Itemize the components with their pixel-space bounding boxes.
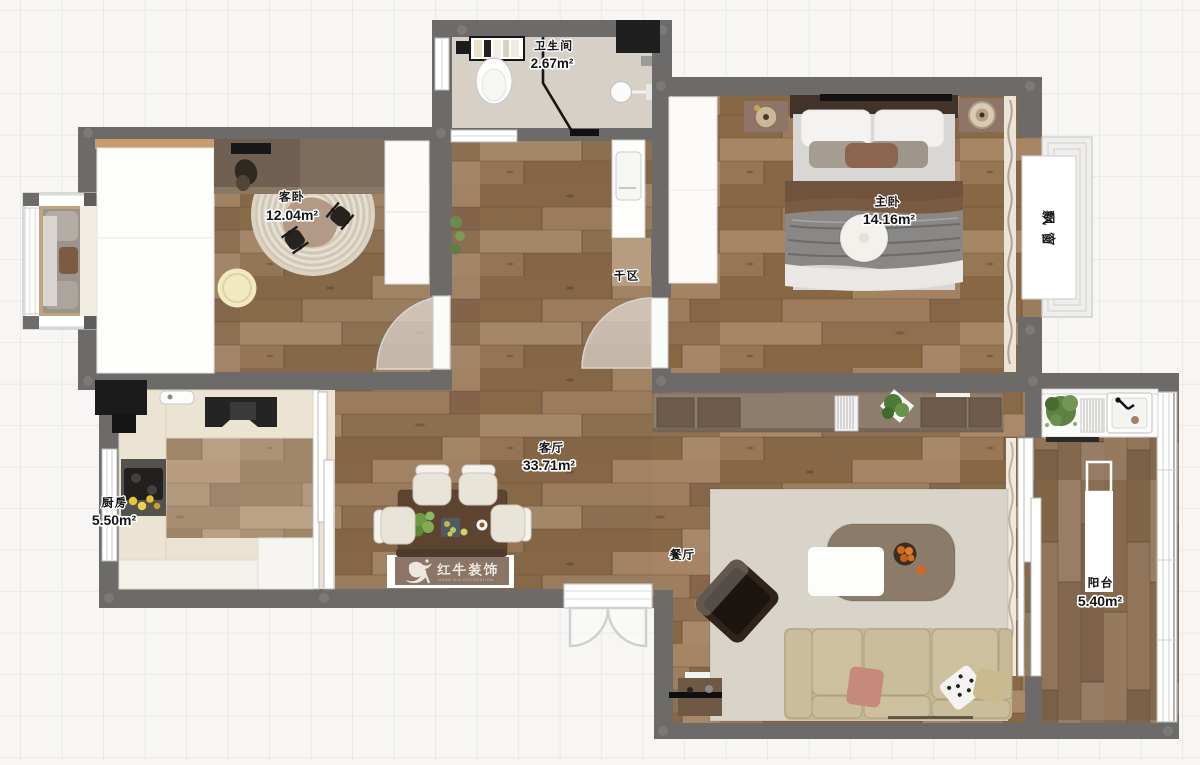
svg-text:5.50m²: 5.50m² [92,512,137,528]
svg-text:33.71m²: 33.71m² [523,457,575,473]
svg-text:14.16m²: 14.16m² [863,211,915,227]
svg-text:HONG NIU DECORATION: HONG NIU DECORATION [438,578,493,582]
svg-text:12.04m²: 12.04m² [266,207,318,223]
svg-text:2.67m²: 2.67m² [531,56,574,71]
svg-text:5.40m²: 5.40m² [1078,593,1123,609]
